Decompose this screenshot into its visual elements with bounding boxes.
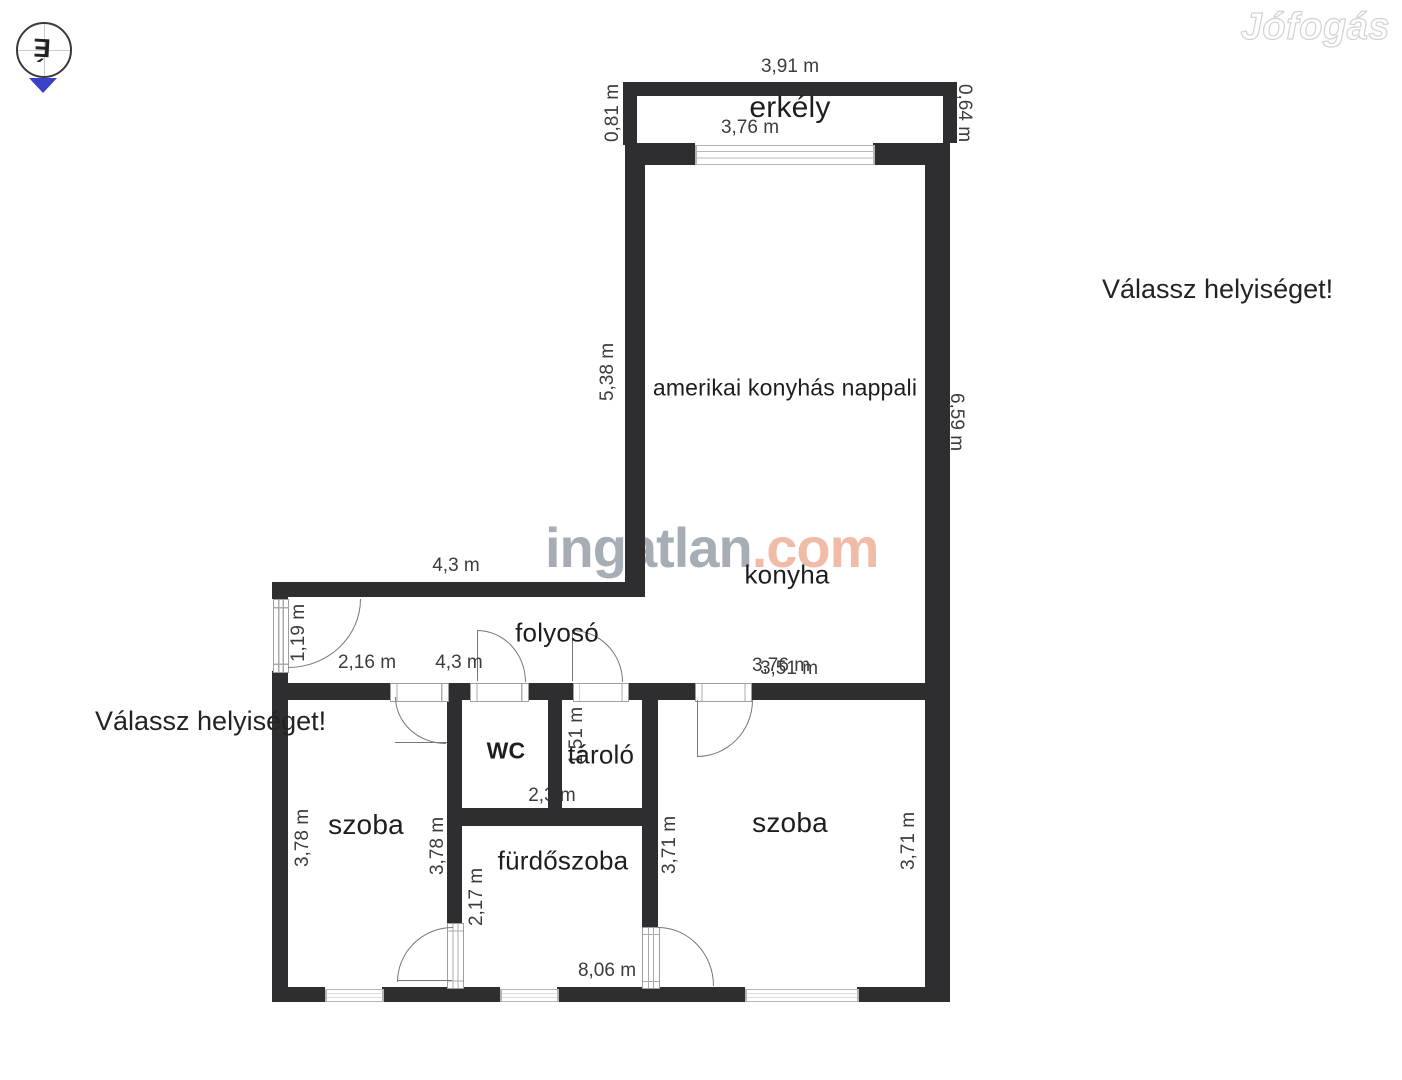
room-label-living[interactable]: amerikai konyhás nappali: [653, 375, 917, 402]
window-living-balcony-door: [695, 145, 875, 165]
dim-entry-door: 1,19 m: [288, 604, 310, 662]
dim-hall-left: 2,16 m: [338, 652, 396, 674]
wall-balcony-left: [623, 82, 637, 145]
dim-room-right-b: 3,71 m: [898, 812, 920, 870]
dim-hall-inner: 4,3 m: [435, 652, 483, 674]
wall-living-top-left: [625, 143, 695, 165]
door-arc-bathroom-room-right: [658, 927, 714, 986]
door-frame-storage: [573, 683, 629, 702]
dim-balcony-right: 0,64 m: [953, 84, 975, 142]
dim-room-left-b: 3,78 m: [427, 817, 449, 875]
wall-room-left-wc: [447, 697, 462, 923]
dim-kitchen-width-b: 3,51 m: [760, 658, 818, 680]
compass-triangle-icon: [29, 78, 57, 93]
jofogas-watermark: Jófogás: [1241, 6, 1390, 49]
floorplan-canvas: ingatlan.com erkély: [0, 0, 1402, 1080]
dim-living-left: 5,38 m: [597, 343, 619, 401]
dim-room-left-a: 3,78 m: [292, 809, 314, 867]
wall-bottom-2: [382, 987, 500, 1002]
wall-bottom-4: [857, 987, 950, 1002]
door-frame-bathroom-room-right: [642, 927, 660, 989]
room-label-kitchen[interactable]: konyha: [744, 560, 829, 591]
dim-balcony-inner: 3,76 m: [721, 117, 779, 139]
door-frame-entry: [273, 599, 289, 673]
room-label-wc[interactable]: WC: [487, 738, 526, 765]
compass-north-letter: É: [15, 21, 70, 76]
prompt-left: Válassz helyiséget!: [95, 706, 326, 737]
window-room-right: [745, 989, 859, 1002]
door-leaf-room-right: [697, 700, 698, 756]
room-label-room-left[interactable]: szoba: [328, 809, 404, 841]
door-arc-room-left-bathroom: [397, 927, 453, 982]
wall-bottom-3: [557, 987, 745, 1002]
window-bathroom: [500, 989, 559, 1002]
door-arc-room-left: [395, 697, 446, 744]
dim-balcony-left: 0,81 m: [602, 84, 624, 142]
wall-corridor-top: [272, 582, 645, 597]
wall-lower-top-5: [750, 683, 925, 700]
room-label-bathroom[interactable]: fürdőszoba: [498, 846, 629, 877]
door-leaf-room-left-bathroom: [397, 980, 452, 981]
door-frame-room-left: [390, 683, 449, 702]
wall-bathroom-top: [447, 808, 658, 826]
dim-wc-width: 2,3 m: [528, 785, 576, 807]
dim-balcony-top: 3,91 m: [761, 56, 819, 78]
room-label-room-right[interactable]: szoba: [752, 807, 828, 839]
dim-living-right: 6,59 m: [945, 393, 967, 451]
room-label-storage[interactable]: tároló: [568, 740, 634, 771]
door-frame-room-right: [695, 683, 752, 702]
door-frame-wc: [470, 683, 529, 702]
window-room-left: [325, 989, 384, 1002]
compass-icon: É: [16, 22, 72, 78]
dim-room-right-a: 3,71 m: [659, 816, 681, 874]
wall-lower-top-2: [447, 683, 470, 700]
room-label-hallway[interactable]: folyosó: [515, 618, 599, 649]
wall-lower-top-1: [272, 683, 390, 700]
door-frame-room-left-bathroom: [447, 923, 464, 989]
prompt-right: Válassz helyiséget!: [1102, 274, 1333, 305]
wall-living-top-right: [873, 143, 950, 165]
dim-hall-top: 4,3 m: [432, 555, 480, 577]
wall-bottom-1: [272, 987, 325, 1002]
door-leaf-room-left: [395, 742, 447, 743]
wall-left-exterior-upper: [272, 582, 288, 599]
wall-lower-top-4: [627, 683, 695, 700]
wall-right-exterior: [925, 143, 950, 1002]
ingatlan-watermark-gray: ingatlan: [545, 516, 752, 579]
wall-lower-top-3: [527, 683, 573, 700]
dim-bottom-total: 8,06 m: [578, 960, 636, 982]
wall-storage-right: [642, 697, 658, 927]
door-arc-room-right: [697, 700, 753, 757]
dim-bathroom-height: 2,17 m: [466, 868, 488, 926]
